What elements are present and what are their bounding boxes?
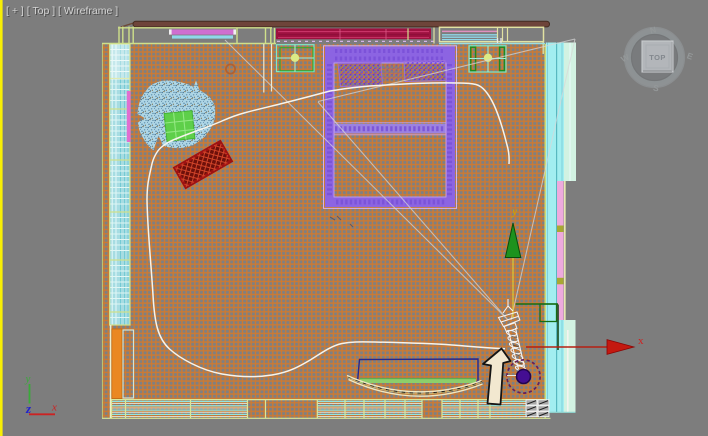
svg-text:y: y: [511, 204, 518, 218]
svg-text:z: z: [25, 401, 32, 416]
svg-text:TOP: TOP: [649, 53, 665, 62]
svg-text:x: x: [51, 402, 57, 414]
svg-text:x: x: [638, 335, 644, 347]
svg-text:[ + ] [ Top ] [ Wireframe ]: [ + ] [ Top ] [ Wireframe ]: [6, 5, 118, 17]
svg-text:y: y: [25, 373, 31, 385]
